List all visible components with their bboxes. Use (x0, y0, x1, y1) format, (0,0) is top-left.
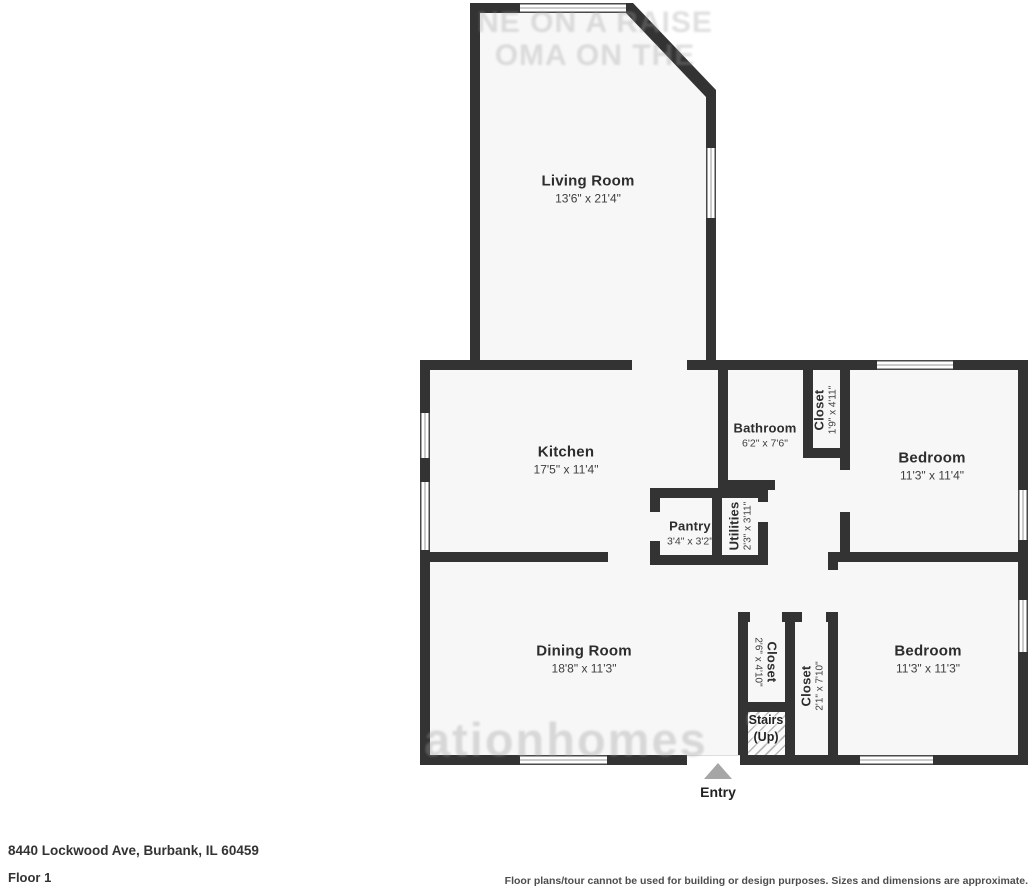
floor-label: Floor 1 (8, 870, 51, 885)
room-label-bathroom: Bathroom 6'2" x 7'6" (734, 421, 797, 450)
room-label-living-room: Living Room 13'6" x 21'4" (541, 173, 634, 206)
wall (650, 488, 660, 512)
kitchen-dims: 17'5" x 11'4" (534, 463, 599, 477)
bedroom-1-name: Bedroom (898, 450, 965, 467)
bedroom-2-dims: 11'3" x 11'3" (894, 662, 961, 676)
wall (738, 702, 795, 712)
room-label-kitchen: Kitchen 17'5" x 11'4" (534, 444, 599, 477)
wall (650, 488, 768, 498)
wall (718, 370, 728, 480)
kitchen-name: Kitchen (534, 444, 599, 461)
wall (738, 612, 748, 755)
hall-closet-dims: 1'9" x 4'11" (828, 386, 839, 435)
window (860, 755, 933, 765)
dining-room-dims: 18'8" x 11'3" (536, 662, 632, 676)
window (1018, 490, 1028, 540)
room-label-hall-closet: Closet 1'9" x 4'11" (812, 386, 839, 435)
closet-a-name: Closet (765, 637, 780, 686)
wall (650, 555, 768, 565)
room-label-pantry: Pantry 3'4" x 3'2" (667, 519, 713, 548)
bedroom-2-name: Bedroom (894, 643, 961, 660)
window (706, 148, 716, 218)
window (1018, 600, 1028, 652)
wall (795, 612, 802, 622)
living-room-name: Living Room (541, 173, 634, 190)
wall (830, 552, 1018, 562)
pantry-dims: 3'4" x 3'2" (667, 536, 713, 548)
bathroom-name: Bathroom (734, 421, 797, 436)
room-label-utilities: Utilities 2'3" x 3'11" (727, 502, 754, 551)
entry-label: Entry (700, 784, 736, 800)
stairs-name: Stairs (749, 712, 784, 729)
bathroom-dims: 6'2" x 7'6" (734, 438, 797, 450)
window (420, 482, 430, 550)
hall-closet-name: Closet (812, 386, 827, 435)
stairs-label: Stairs (Up) (749, 712, 784, 746)
wall (424, 552, 608, 562)
floor-plan-canvas: Living Room 13'6" x 21'4" Kitchen 17'5" … (0, 0, 1032, 889)
wall (758, 488, 768, 502)
window (420, 413, 430, 458)
wall (840, 512, 850, 552)
closet-b-name: Closet (799, 661, 814, 710)
address-text: 8440 Lockwood Ave, Burbank, IL 60459 (8, 843, 259, 858)
entry-arrow-icon (704, 763, 732, 779)
living-room-dims: 13'6" x 21'4" (541, 192, 634, 206)
room-label-closet-a: Closet 2'6" x 4'10" (753, 637, 780, 686)
window (877, 360, 953, 370)
room-label-closet-b: Closet 2'1" x 7'10" (799, 661, 826, 710)
doorway-living-kitchen (632, 352, 687, 375)
window (520, 755, 607, 765)
pantry-name: Pantry (667, 519, 713, 534)
wall (840, 370, 850, 470)
room-label-bedroom-2: Bedroom 11'3" x 11'3" (894, 643, 961, 676)
utilities-dims: 2'3" x 3'11" (743, 502, 754, 551)
room-label-bedroom-1: Bedroom 11'3" x 11'4" (898, 450, 965, 483)
closet-b-dims: 2'1" x 7'10" (815, 661, 826, 710)
bedroom-1-dims: 11'3" x 11'4" (898, 469, 965, 483)
closet-a-dims: 2'6" x 4'10" (753, 637, 764, 686)
window (520, 3, 626, 13)
wall (828, 612, 838, 755)
room-label-dining-room: Dining Room 18'8" x 11'3" (536, 643, 632, 676)
disclaimer-text: Floor plans/tour cannot be used for buil… (505, 875, 1028, 887)
wall (712, 488, 722, 565)
wall (785, 612, 795, 755)
wall (828, 552, 838, 570)
utilities-name: Utilities (727, 502, 742, 551)
dining-room-name: Dining Room (536, 643, 632, 660)
stairs-sub: (Up) (749, 729, 784, 746)
wall (738, 612, 750, 622)
